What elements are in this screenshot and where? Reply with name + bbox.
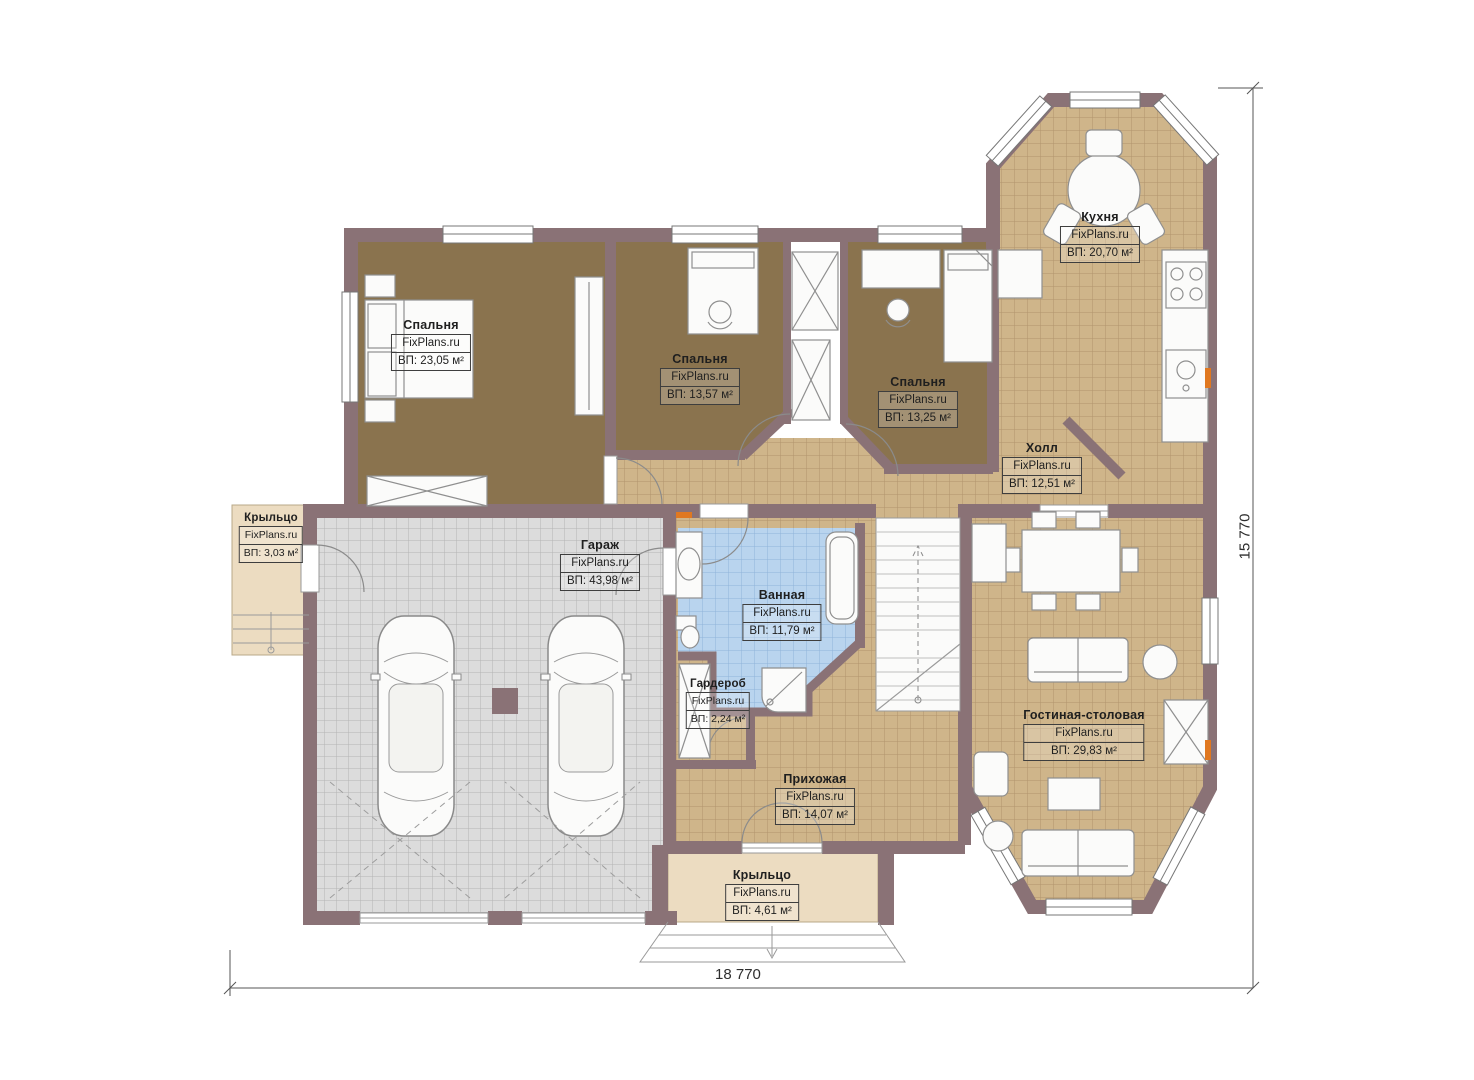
wall-living-west-2: [958, 705, 971, 845]
room-label-bathroom: Ванная FixPlans.ru ВП: 11,79 м²: [742, 588, 821, 641]
kitchen-counter: [1162, 250, 1208, 442]
wardrobe-x-bedroom1: [367, 476, 487, 506]
opening-garage-house: [663, 548, 676, 595]
opening-porch-garage: [301, 545, 319, 592]
window-kitchen-top: [1070, 92, 1140, 108]
nightstand: [365, 400, 395, 422]
room-label-bedroom2: Спальня FixPlans.ru ВП: 13,57 м²: [660, 352, 740, 405]
room-label-kitchen: Кухня FixPlans.ru ВП: 20,70 м²: [1060, 210, 1140, 263]
room-area: ВП: 23,05 м²: [391, 353, 471, 371]
nightstand: [365, 275, 395, 297]
desk-bedroom3: [862, 250, 940, 288]
kitchen-cabinet: [998, 250, 1042, 298]
closet-x-1: [792, 252, 838, 330]
room-area: ВП: 13,25 м²: [878, 410, 958, 428]
watermark: FixPlans.ru: [686, 692, 750, 711]
wall-mid-horizontal-2: [748, 504, 876, 518]
wall-mid-horizontal-1: [303, 504, 700, 518]
room-area: ВП: 20,70 м²: [1060, 245, 1140, 263]
wall-garage-west-lower: [303, 592, 317, 925]
room-name: Крыльцо: [725, 868, 799, 882]
floor-plan-canvas: Спальня FixPlans.ru ВП: 23,05 м² Спальня…: [0, 0, 1474, 1080]
room-name: Гардероб: [686, 678, 750, 690]
tv-unit-x: [1164, 700, 1208, 764]
room-label-garage: Гараж FixPlans.ru ВП: 43,98 м²: [560, 538, 640, 591]
opening-bedroom1: [604, 456, 617, 504]
room-name: Спальня: [878, 375, 958, 389]
window-bedroom1-top: [443, 226, 533, 243]
dresser-tall: [575, 277, 603, 415]
room-name: Гараж: [560, 538, 640, 552]
room-area: ВП: 13,57 м²: [660, 387, 740, 405]
window-bedroom1-left: [342, 292, 358, 402]
room-name: Крыльцо: [239, 512, 303, 524]
room-name: Спальня: [660, 352, 740, 366]
closet-x-2: [792, 340, 830, 420]
threshold-garage-door-1: [360, 913, 488, 923]
living-cabinet: [972, 524, 1006, 582]
room-name: Холл: [1002, 441, 1082, 455]
room-label-porch-left: Крыльцо FixPlans.ru ВП: 3,03 м²: [239, 512, 303, 563]
sink-icon: [1166, 350, 1206, 398]
car-right: [541, 616, 631, 836]
wall-left-upper: [344, 228, 358, 294]
chair-round-living: [983, 821, 1013, 851]
sofa-mid: [1028, 638, 1128, 682]
bathtub-icon: [826, 532, 858, 624]
watermark: FixPlans.ru: [391, 334, 471, 353]
dimension-width: 18 770: [715, 966, 761, 983]
wall-hall-living-2: [1108, 504, 1210, 518]
watermark: FixPlans.ru: [1023, 724, 1144, 743]
watermark: FixPlans.ru: [560, 554, 640, 573]
porch-front-steps: [640, 922, 905, 962]
watermark: FixPlans.ru: [1002, 457, 1082, 476]
room-area: ВП: 2,24 м²: [686, 711, 750, 729]
stove-icon: [1166, 262, 1206, 308]
coffee-table: [1048, 778, 1100, 810]
wall-garage-south-pier: [488, 911, 522, 925]
room-label-living: Гостиная-столовая FixPlans.ru ВП: 29,83 …: [1023, 708, 1144, 761]
room-name: Спальня: [391, 318, 471, 332]
watermark: FixPlans.ru: [725, 884, 799, 903]
bath-vanity: [676, 532, 702, 598]
room-area: ВП: 4,61 м²: [725, 903, 799, 921]
wall-garage-house-2: [663, 595, 676, 845]
car-left: [371, 616, 461, 836]
threshold-front-door: [742, 843, 822, 853]
wall-garage-house-1: [663, 518, 676, 548]
room-area: ВП: 3,03 м²: [239, 545, 303, 563]
window-living-bottom: [1046, 899, 1132, 915]
opening-bathroom: [700, 504, 748, 518]
wall-closet-east: [840, 242, 848, 424]
shower-icon: [762, 668, 806, 712]
wall-garage-south-1: [303, 911, 360, 925]
room-area: ВП: 43,98 м²: [560, 573, 640, 591]
sofa-bay: [1022, 830, 1134, 876]
room-label-bedroom3: Спальня FixPlans.ru ВП: 13,25 м²: [878, 375, 958, 428]
dimension-height: 15 770: [1236, 514, 1253, 560]
watermark: FixPlans.ru: [1060, 226, 1140, 245]
room-label-wardrobe: Гардероб FixPlans.ru ВП: 2,24 м²: [686, 678, 750, 729]
room-area: ВП: 29,83 м²: [1023, 743, 1144, 761]
room-area: ВП: 12,51 м²: [1002, 476, 1082, 494]
room-label-bedroom1: Спальня FixPlans.ru ВП: 23,05 м²: [391, 318, 471, 371]
room-name: Гостиная-столовая: [1023, 708, 1144, 722]
wall-bedroom1-2: [605, 242, 616, 456]
side-table-round: [1143, 645, 1177, 679]
room-area: ВП: 11,79 м²: [742, 623, 821, 641]
watermark: FixPlans.ru: [239, 526, 303, 545]
wall-hall-living-1: [958, 504, 1040, 518]
window-living-right: [1202, 598, 1218, 664]
wall-bedroom2-south: [611, 450, 745, 460]
room-name: Ванная: [742, 588, 821, 602]
room-name: Кухня: [1060, 210, 1140, 224]
room-label-hall: Холл FixPlans.ru ВП: 12,51 м²: [1002, 441, 1082, 494]
wall-entry-south-1: [665, 841, 742, 854]
room-area: ВП: 14,07 м²: [775, 807, 855, 825]
room-label-entry: Прихожая FixPlans.ru ВП: 14,07 м²: [775, 772, 855, 825]
watermark: FixPlans.ru: [878, 391, 958, 410]
room-name: Прихожая: [775, 772, 855, 786]
watermark: FixPlans.ru: [742, 604, 821, 623]
window-bedroom2-top: [672, 226, 758, 243]
radiator-icon: [1205, 740, 1211, 760]
radiator-icon: [1205, 368, 1211, 388]
wall-bedroom3-south: [884, 464, 993, 474]
wall-wardrobe-south: [672, 760, 756, 769]
bed-single-bedroom3: [944, 250, 992, 362]
armchair: [974, 752, 1008, 796]
window-bedroom3-top: [878, 226, 962, 243]
threshold-garage-door-2: [522, 913, 645, 923]
garage-column: [492, 688, 518, 714]
watermark: FixPlans.ru: [660, 368, 740, 387]
room-label-porch-front: Крыльцо FixPlans.ru ВП: 4,61 м²: [725, 868, 799, 921]
watermark: FixPlans.ru: [775, 788, 855, 807]
wall-porch-pier-left: [652, 845, 668, 925]
wall-closet-west: [783, 242, 791, 424]
radiator-icon: [676, 512, 692, 518]
staircase: [876, 518, 960, 711]
wall-porch-pier-right: [878, 845, 894, 925]
wall-left-lower: [344, 400, 358, 518]
